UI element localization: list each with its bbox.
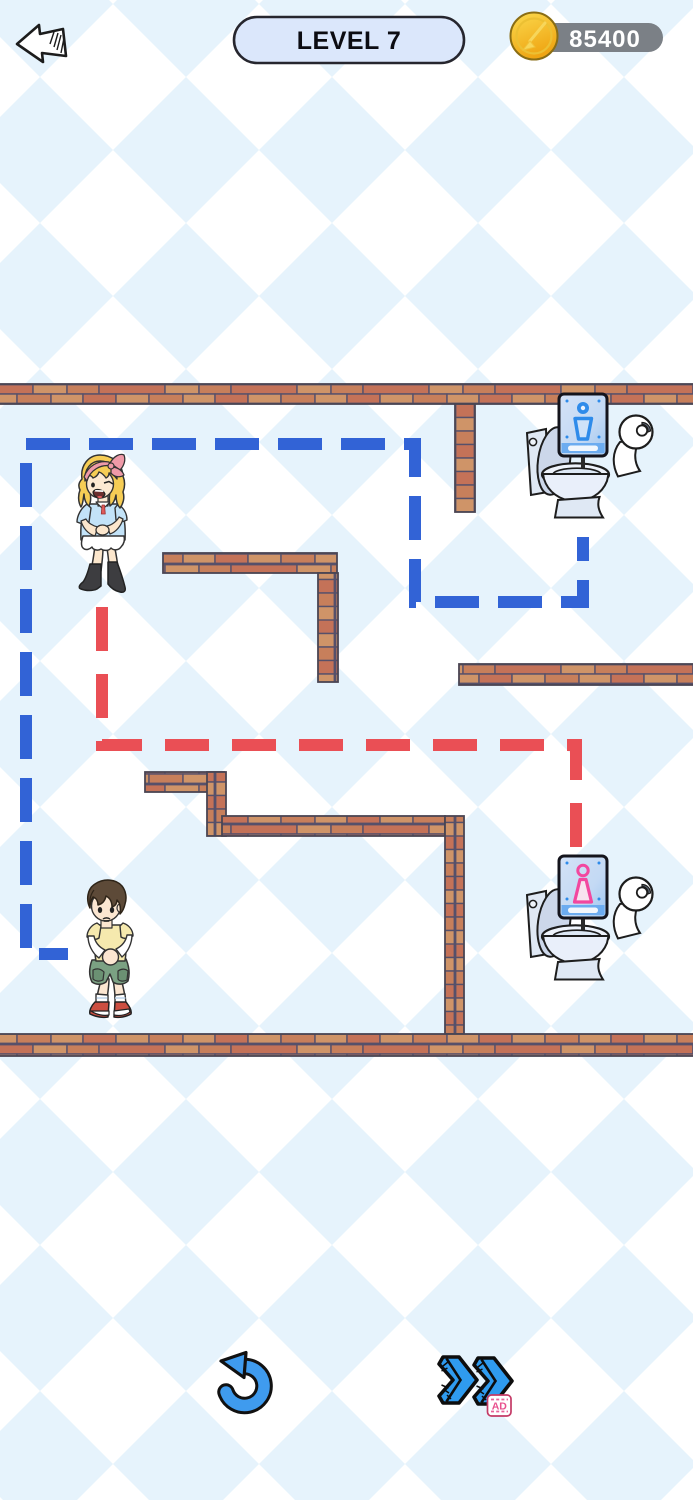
svg-text:LEVEL 7: LEVEL 7 (297, 27, 401, 55)
svg-text:AD: AD (492, 1401, 508, 1413)
svg-text:85400: 85400 (569, 26, 641, 53)
